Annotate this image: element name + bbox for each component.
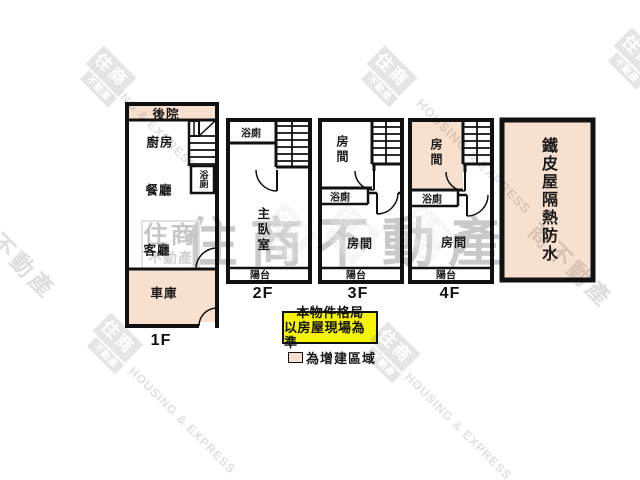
roof-area-label: 鐵皮屋隔熱防水 [539,137,555,263]
notice-box: 本物件格局 以房屋現場為準 [282,311,378,344]
legend-label: 為增建區域 [306,348,376,367]
room-label-bath-4f: 浴廁 [422,191,442,206]
notice-line2: 以房屋現場為準 [284,320,376,350]
room-label-room-4f-upper: 房間 [430,138,442,168]
floor-label-2f: 2F [253,285,274,303]
floor-label-3f: 3F [348,285,369,303]
room-label-balcony-3f: 陽台 [346,267,366,282]
room-label-backyard: 後院 [152,104,179,123]
room-label-balcony-4f: 陽台 [436,267,456,282]
room-label-living: 客廳 [143,240,170,259]
garage-door-gap [199,322,215,330]
legend-row: 為增建區域 [288,348,376,367]
room-label-master-bedroom: 主臥室 [256,207,269,254]
room-label-bath-2f: 浴廁 [241,125,261,140]
notice-line1: 本物件格局 [296,305,364,320]
room-label-room-3f-upper: 房間 [336,135,348,165]
room-label-dining: 餐廳 [145,180,172,199]
room-label-garage: 車庫 [150,283,177,302]
room-label-room-3f-lower: 房間 [347,235,373,252]
room-label-bath-3f: 浴廁 [330,189,350,204]
room-label-room-4f-lower: 房間 [441,234,467,251]
floorplan-image: 後院 廚房 餐廳 客廳 車庫 浴廁 1F 浴廁 主臥室 陽台 2F 房間 浴廁 … [0,0,640,480]
room-label-bath-1f: 浴廁 [199,170,208,188]
addition-area-swatch [288,352,303,363]
room-label-balcony-2f: 陽台 [250,267,270,282]
room-label-kitchen: 廚房 [146,132,173,151]
floor-label-4f: 4F [440,285,461,303]
floor-label-1f: 1F [151,332,172,350]
